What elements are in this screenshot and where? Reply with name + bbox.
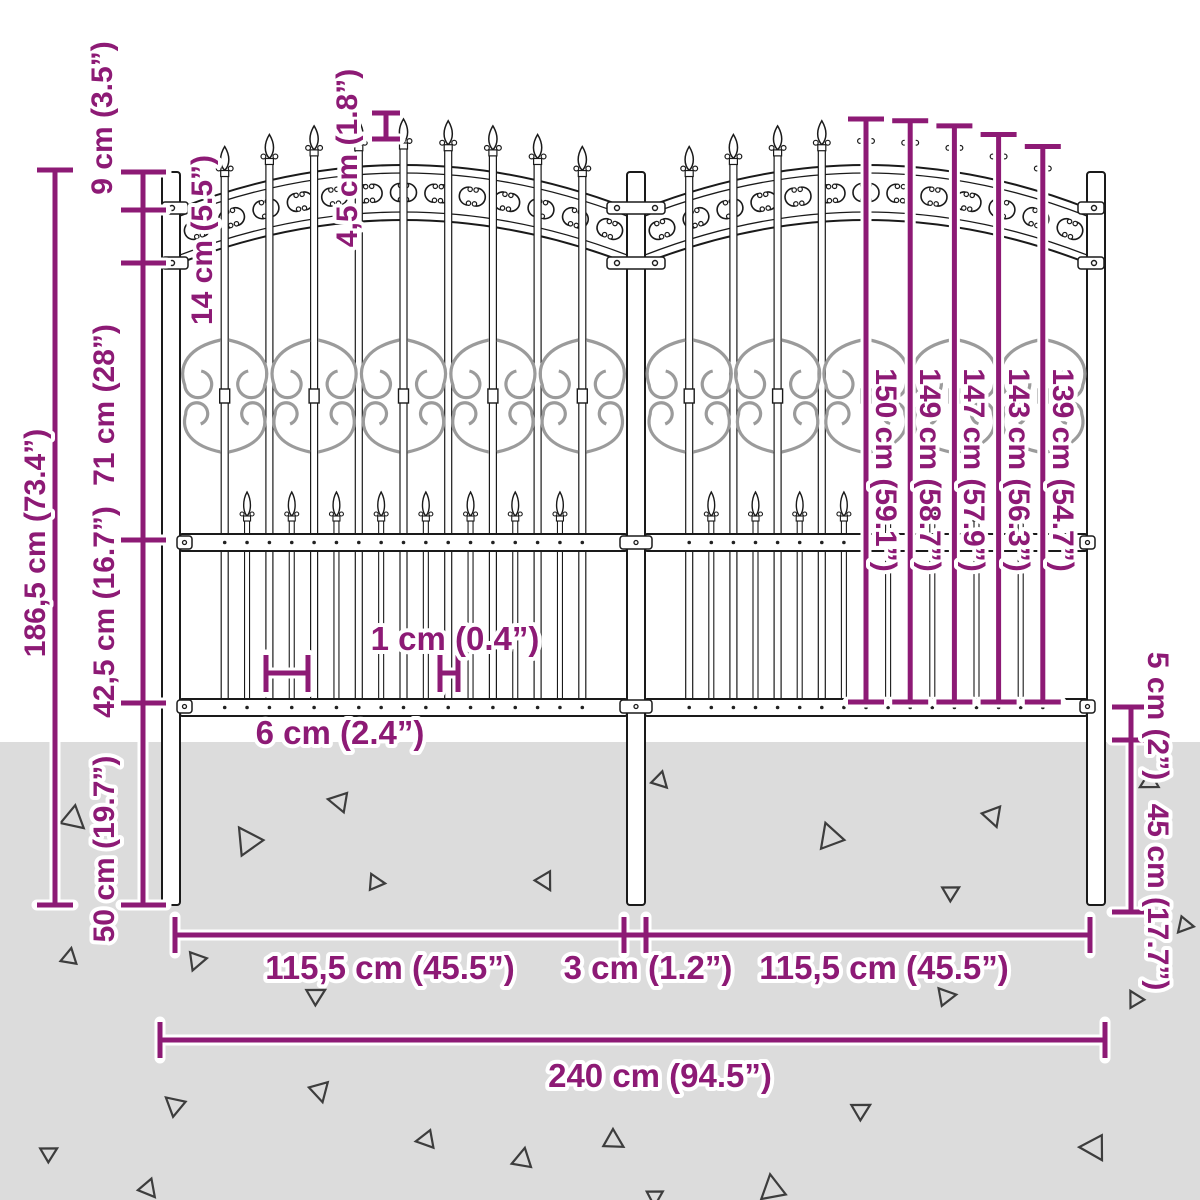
dim-label-bar-gap: 1 cm (0.4”) (371, 620, 540, 657)
dim-label-total-width: 240 cm (94.5”) (548, 1057, 772, 1094)
dim-label-bar-height-143: 143 cm (56.3”) (1002, 368, 1035, 571)
spear-finial (773, 126, 781, 150)
fence-dimension-diagram: 186,5 cm (73.4”) 9 cm (3.5”) 14 cm (5.5”… (0, 0, 1200, 1200)
spear-finial (310, 126, 318, 150)
diagram-canvas: 186,5 cm (73.4”) 9 cm (3.5”) 14 cm (5.5”… (0, 0, 1200, 1200)
dim-label-left-panel-width: 115,5 cm (45.5”) (265, 949, 515, 986)
spear-finial (533, 134, 541, 158)
spear-finial (841, 492, 848, 516)
spear-finial (708, 492, 715, 516)
spear-finial (422, 492, 429, 516)
dim-label-post-above-band: 9 cm (3.5”) (86, 41, 119, 194)
dim-label-total-height: 186,5 cm (73.4”) (19, 429, 52, 657)
spear-finial (378, 492, 385, 516)
spear-finial (685, 147, 693, 171)
dim-label-upper-section: 71 cm (28”) (88, 324, 121, 486)
spear-finial (489, 126, 497, 150)
spear-finial (244, 492, 251, 516)
dim-label-band-height: 14 cm (5.5”) (186, 155, 219, 325)
spear-finial (444, 121, 452, 145)
dim-label-bar-height-149: 149 cm (58.7”) (913, 368, 946, 571)
spear-finial (578, 147, 586, 171)
spear-finial (221, 147, 229, 171)
dim-label-bar-height-147: 147 cm (57.9”) (957, 368, 990, 571)
spear-finial (818, 121, 826, 145)
spear-finial (729, 134, 737, 158)
dim-label-bar-height-139: 139 cm (54.7”) (1046, 368, 1079, 571)
spear-finial (265, 134, 273, 158)
spear-finial (752, 492, 759, 516)
dim-label-post-gap: 3 cm (1.2”) (564, 949, 733, 986)
generated-art (0, 113, 1200, 1200)
dim-label-right-panel-width: 115,5 cm (45.5”) (759, 949, 1009, 986)
spear-finial (467, 492, 474, 516)
dim-label-below-rail: 50 cm (19.7”) (88, 756, 121, 943)
dim-label-spike-step: 4,5 cm (1.8”) (331, 69, 364, 247)
spear-finial (333, 492, 340, 516)
dim-label-bar-height-150: 150 cm (59.1”) (869, 368, 902, 571)
dim-label-lower-section: 42,5 cm (16.7”) (88, 506, 121, 718)
spear-finial (796, 492, 803, 516)
spear-finial (557, 492, 564, 516)
dim-label-spike-depth: 45 cm (17.7”) (1141, 804, 1174, 991)
dim-label-rail-to-ground: 5 cm (2”) (1141, 652, 1174, 780)
spear-finial (288, 492, 295, 516)
dim-label-bar-spacing: 6 cm (2.4”) (256, 714, 425, 751)
spear-finial (512, 492, 519, 516)
